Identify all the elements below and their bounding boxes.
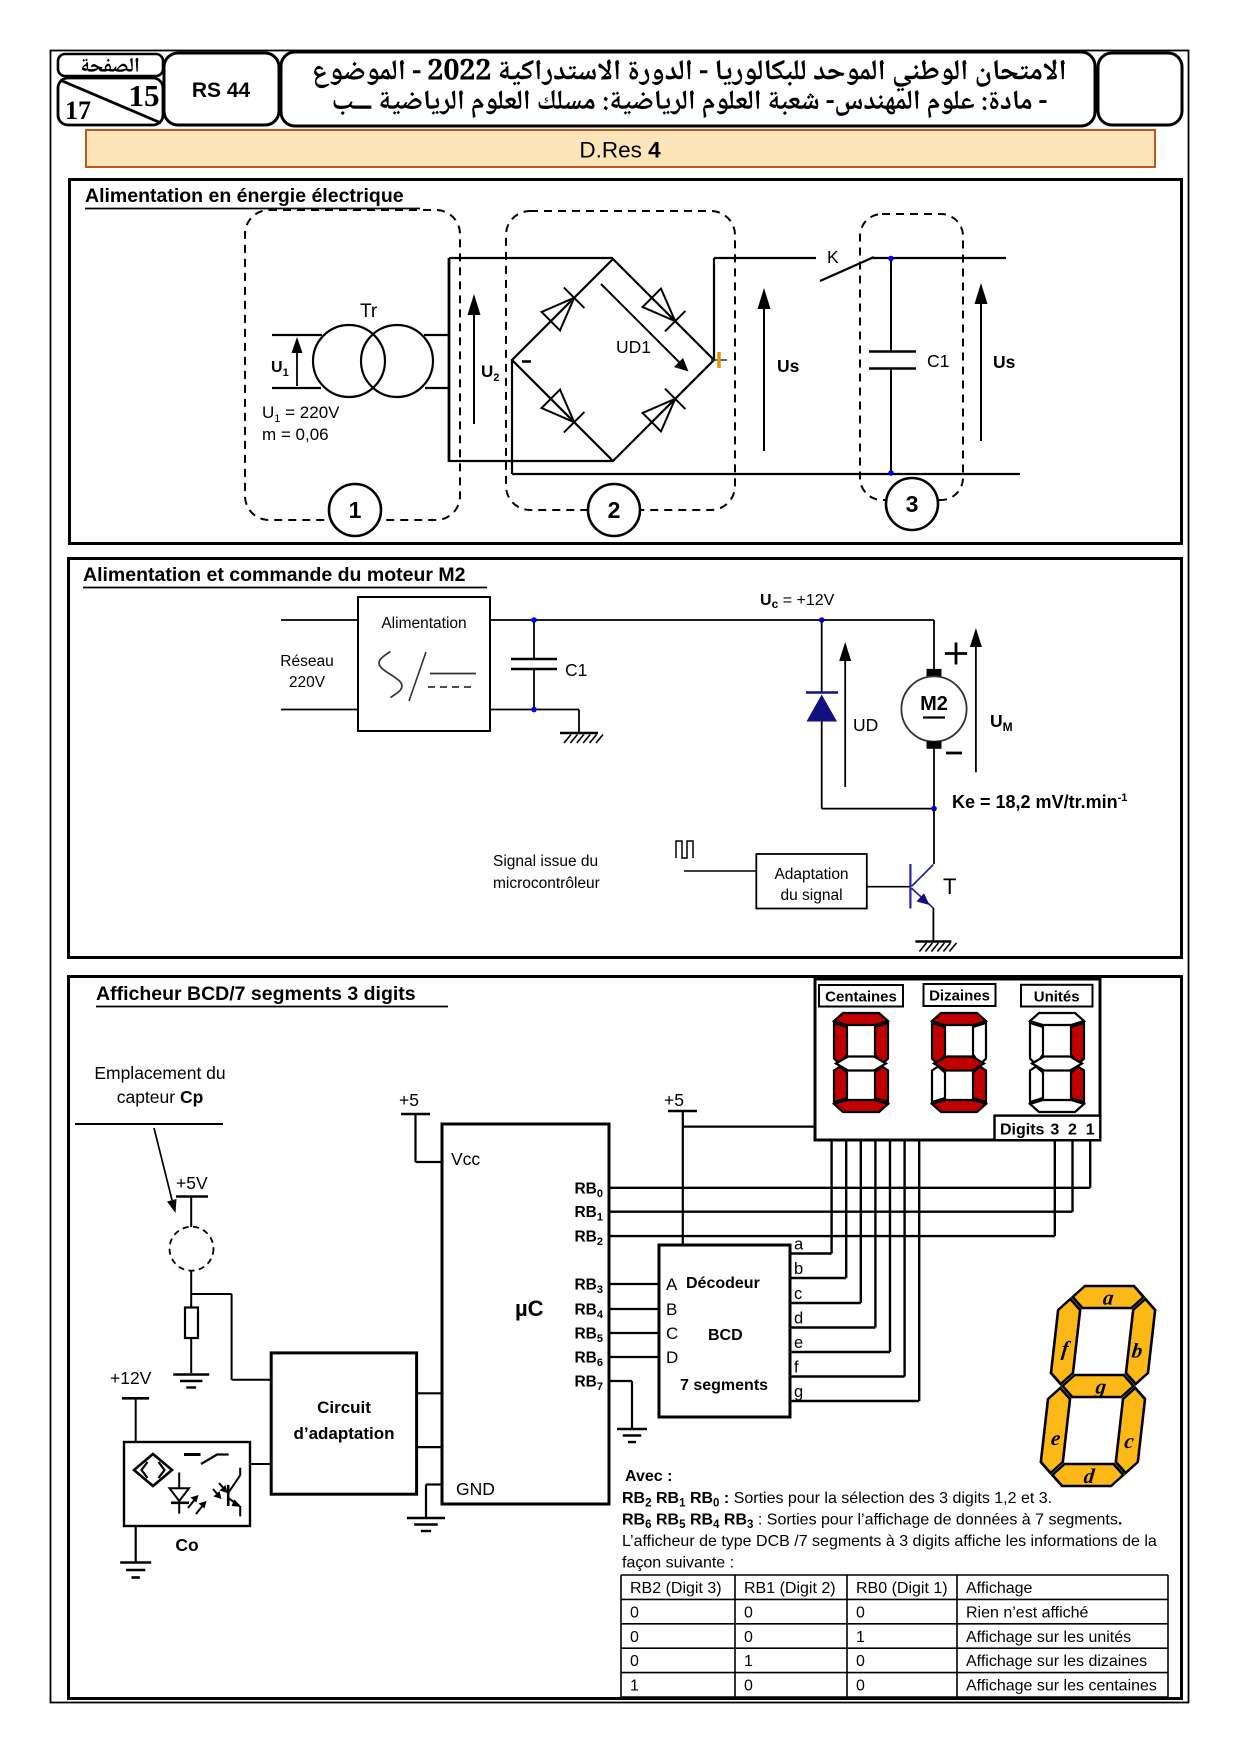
svg-text:d’adaptation: d’adaptation bbox=[293, 1424, 394, 1443]
svg-text:b: b bbox=[794, 1260, 803, 1278]
svg-text:Emplacement du: Emplacement du bbox=[94, 1063, 225, 1083]
svg-text:0: 0 bbox=[856, 1653, 865, 1670]
svg-text:du signal: du signal bbox=[780, 887, 842, 904]
svg-text:Alimentation: Alimentation bbox=[381, 615, 466, 632]
svg-text:1: 1 bbox=[744, 1653, 753, 1670]
svg-text:+5: +5 bbox=[664, 1090, 684, 1110]
svg-text:0: 0 bbox=[856, 1678, 865, 1695]
svg-text:Décodeur: Décodeur bbox=[686, 1275, 760, 1292]
svg-text:A: A bbox=[666, 1275, 678, 1294]
svg-text:Alimentation et commande du mo: Alimentation et commande du moteur M2 bbox=[83, 564, 466, 586]
svg-text:3: 3 bbox=[1050, 1122, 1059, 1139]
svg-text:C1: C1 bbox=[565, 660, 587, 680]
svg-text:microcontrôleur: microcontrôleur bbox=[493, 875, 600, 892]
svg-text:1: 1 bbox=[349, 497, 362, 523]
svg-text:T: T bbox=[943, 874, 956, 899]
svg-text:K: K bbox=[827, 247, 839, 267]
svg-text:0: 0 bbox=[744, 1629, 753, 1646]
svg-text:C1: C1 bbox=[927, 351, 949, 371]
svg-text:0: 0 bbox=[630, 1629, 639, 1646]
svg-text:Vcc: Vcc bbox=[451, 1149, 480, 1169]
svg-text:Signal issue du: Signal issue du bbox=[493, 853, 598, 870]
svg-text:Dizaines: Dizaines bbox=[929, 988, 990, 1005]
svg-text:0: 0 bbox=[630, 1604, 639, 1621]
svg-text:0: 0 bbox=[744, 1604, 753, 1621]
svg-text:1: 1 bbox=[856, 1629, 865, 1646]
svg-text:D.Res 4: D.Res 4 bbox=[579, 138, 661, 163]
svg-text:GND: GND bbox=[456, 1479, 495, 1499]
svg-text:Réseau: Réseau bbox=[280, 653, 333, 670]
svg-text:Co: Co bbox=[175, 1535, 198, 1555]
svg-text:7 segments: 7 segments bbox=[680, 1377, 768, 1394]
svg-text:C: C bbox=[666, 1324, 678, 1343]
svg-text:1: 1 bbox=[630, 1678, 639, 1695]
svg-text:d: d bbox=[794, 1310, 803, 1328]
svg-text:Tr: Tr bbox=[360, 301, 378, 322]
svg-text:façon suivante :: façon suivante : bbox=[622, 1555, 734, 1572]
svg-text:Centaines: Centaines bbox=[825, 989, 897, 1006]
svg-text:Uc = +12V: Uc = +12V bbox=[760, 592, 835, 611]
svg-text:Affichage sur les unités: Affichage sur les unités bbox=[966, 1629, 1131, 1646]
svg-text:M2: M2 bbox=[920, 693, 948, 715]
svg-text:2: 2 bbox=[1068, 1122, 1077, 1139]
svg-text:BCD: BCD bbox=[708, 1327, 743, 1344]
svg-text:RB2 RB1 RB0 : Sorties pour la: RB2 RB1 RB0 : Sorties pour la sélection … bbox=[622, 1490, 1052, 1510]
svg-text:+12V: +12V bbox=[110, 1368, 152, 1388]
svg-text:+5: +5 bbox=[399, 1090, 419, 1110]
svg-text:RB1 (Digit 2): RB1 (Digit 2) bbox=[744, 1580, 836, 1597]
svg-text:c: c bbox=[794, 1285, 802, 1303]
svg-text:g: g bbox=[794, 1383, 803, 1401]
svg-text:Afficheur BCD/7 segments 3 dig: Afficheur BCD/7 segments 3 digits bbox=[96, 983, 416, 1005]
svg-text:0: 0 bbox=[744, 1678, 753, 1695]
svg-text:Circuit: Circuit bbox=[317, 1398, 371, 1417]
svg-text:Affichage sur les dizaines: Affichage sur les dizaines bbox=[966, 1653, 1147, 1670]
svg-text:2: 2 bbox=[608, 497, 621, 523]
svg-text:Us: Us bbox=[993, 352, 1016, 372]
svg-text:UM: UM bbox=[990, 711, 1013, 734]
svg-text:Rien n’est affiché: Rien n’est affiché bbox=[966, 1604, 1089, 1621]
svg-text:0: 0 bbox=[856, 1604, 865, 1621]
svg-text:f: f bbox=[794, 1359, 799, 1377]
svg-text:µC: µC bbox=[515, 1296, 544, 1321]
svg-text:Digits: Digits bbox=[1000, 1122, 1045, 1139]
svg-text:RB2 (Digit 3): RB2 (Digit 3) bbox=[630, 1580, 722, 1597]
svg-text:RB6 RB5 RB4 RB3 : Sorties pour: RB6 RB5 RB4 RB3 : Sorties pour l’afficha… bbox=[622, 1512, 1122, 1532]
svg-text:RB0 (Digit 1): RB0 (Digit 1) bbox=[856, 1580, 948, 1597]
svg-text:capteur Cp: capteur Cp bbox=[117, 1087, 204, 1107]
svg-text:Us: Us bbox=[777, 356, 800, 376]
svg-text:U1: U1 bbox=[271, 359, 289, 379]
svg-text:15: 15 bbox=[129, 78, 160, 113]
svg-text:U2: U2 bbox=[481, 362, 499, 384]
svg-text:3: 3 bbox=[906, 491, 919, 517]
svg-text:Unités: Unités bbox=[1034, 989, 1080, 1006]
svg-text:Ke = 18,2 mV/tr.min-1: Ke = 18,2 mV/tr.min-1 bbox=[952, 792, 1127, 812]
svg-text:220V: 220V bbox=[289, 674, 326, 691]
svg-text:Avec :: Avec : bbox=[625, 1468, 672, 1485]
svg-text:m = 0,06: m = 0,06 bbox=[262, 425, 329, 444]
svg-text:0: 0 bbox=[630, 1653, 639, 1670]
svg-text:e: e bbox=[794, 1334, 803, 1352]
svg-text:Affichage: Affichage bbox=[966, 1580, 1033, 1597]
svg-text:RS 44: RS 44 bbox=[192, 79, 251, 102]
svg-text:+5V: +5V bbox=[176, 1173, 208, 1193]
svg-text:Affichage sur les centaines: Affichage sur les centaines bbox=[966, 1678, 1157, 1695]
svg-text:Alimentation en énergie électr: Alimentation en énergie électrique bbox=[85, 185, 404, 207]
svg-text:U1 = 220V: U1 = 220V bbox=[262, 403, 340, 425]
svg-text:B: B bbox=[666, 1300, 677, 1319]
svg-text:17: 17 bbox=[65, 96, 91, 125]
svg-text:1: 1 bbox=[1086, 1122, 1095, 1139]
svg-text:Adaptation: Adaptation bbox=[774, 866, 848, 883]
svg-text:D: D bbox=[666, 1348, 678, 1367]
svg-text:UD: UD bbox=[853, 715, 878, 735]
svg-text:UD1: UD1 bbox=[616, 337, 651, 357]
svg-text:a: a bbox=[794, 1236, 804, 1254]
svg-text:L’afficheur de type DCB /7 seg: L’afficheur de type DCB /7 segments à 3 … bbox=[622, 1533, 1157, 1550]
